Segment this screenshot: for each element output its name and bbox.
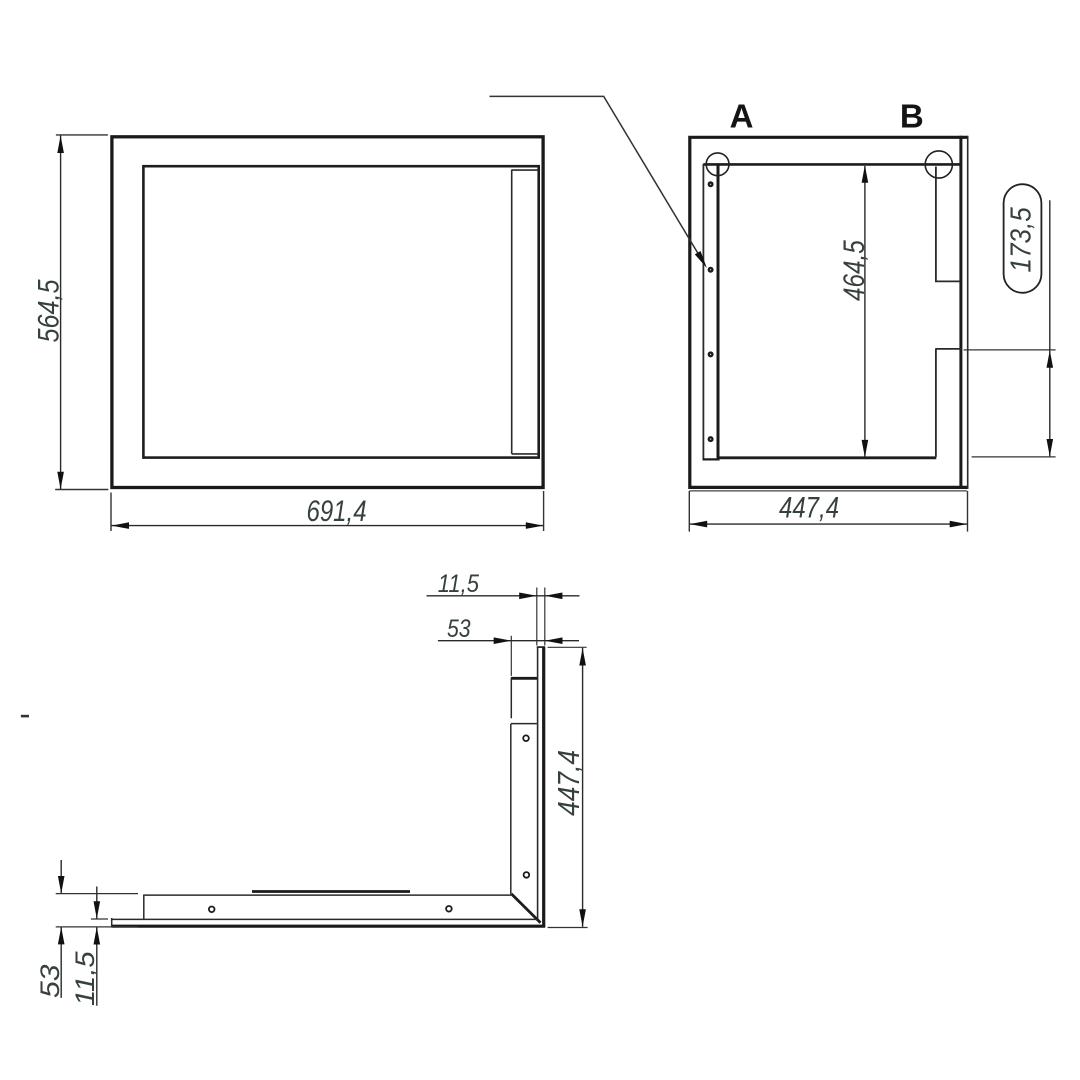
svg-text:447,4: 447,4 — [779, 490, 839, 524]
svg-text:564,5: 564,5 — [32, 279, 66, 343]
svg-text:11,5: 11,5 — [70, 951, 100, 1006]
svg-text:53: 53 — [35, 964, 65, 998]
svg-text:53: 53 — [447, 614, 471, 642]
svg-text:11,5: 11,5 — [438, 570, 480, 598]
svg-text:464,5: 464,5 — [837, 239, 871, 301]
svg-text:447,4: 447,4 — [552, 750, 586, 816]
svg-text:691,4: 691,4 — [307, 493, 367, 527]
svg-text:A: A — [730, 98, 754, 135]
svg-text:B: B — [900, 98, 924, 135]
svg-text:173,5: 173,5 — [1004, 207, 1037, 273]
